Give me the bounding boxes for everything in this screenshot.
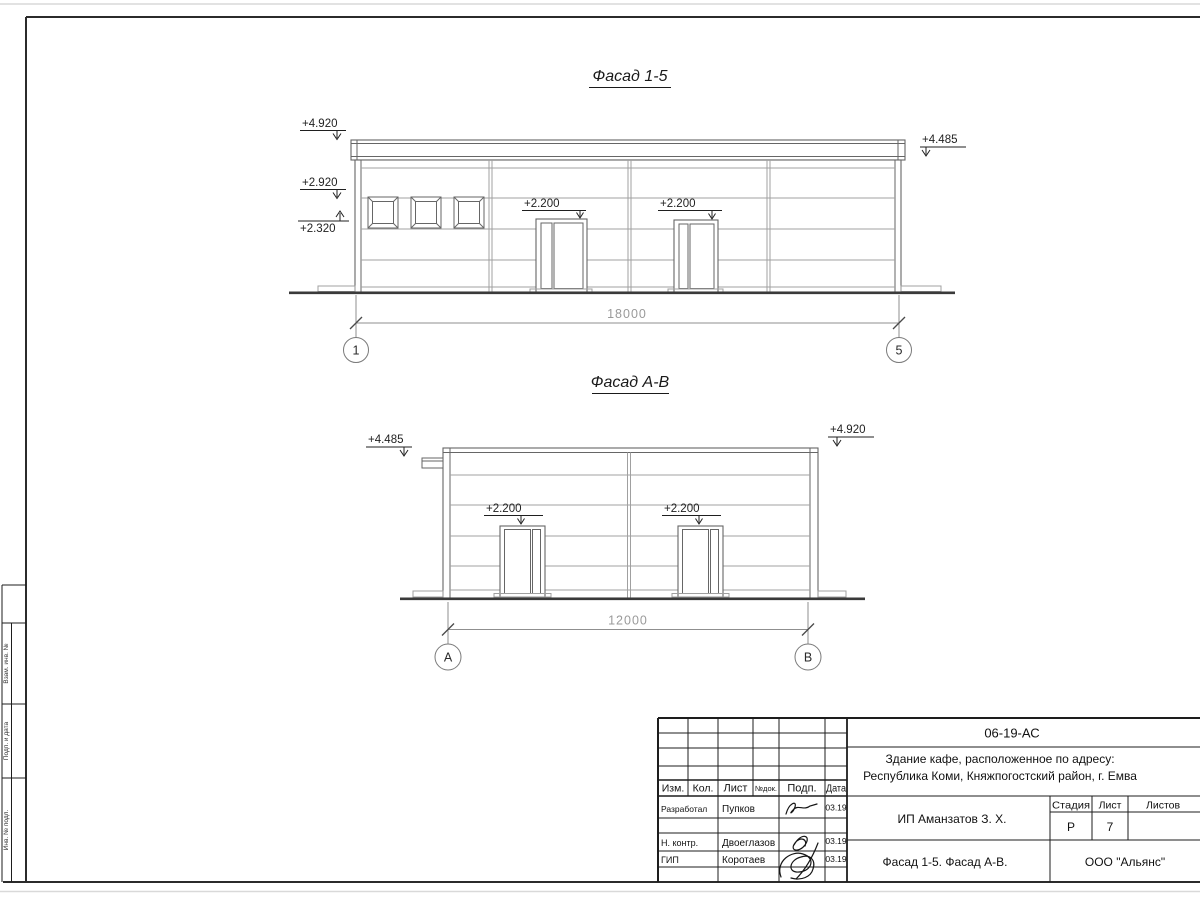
axis-bubble-b: В — [795, 644, 821, 670]
elevation-value: +4.920 — [302, 118, 338, 130]
elevation-mark-4485-left: +4.485 — [366, 434, 412, 456]
door-1 — [536, 219, 587, 292]
facade-a-b: Фасад А-В — [366, 374, 874, 670]
door-1 — [500, 526, 545, 597]
sheet-number-value: 7 — [1107, 820, 1114, 834]
stage-value: Р — [1067, 820, 1075, 834]
title-block: Изм. Кол. Лист №док. Подп. Дата Разработ… — [658, 718, 1200, 882]
facade-a-b-title: Фасад А-В — [591, 374, 670, 391]
windows — [368, 197, 484, 228]
elevation-mark-2920: +2.920 — [300, 177, 346, 199]
elevation-mark-4485-right: +4.485 — [920, 134, 966, 156]
row-role: Разработал — [661, 804, 707, 814]
door-2 — [678, 526, 723, 597]
document-number: 06-19-АС — [984, 726, 1039, 741]
personnel-rows: Разработал Пупков 03.19 Н. контр. Двоегл… — [661, 803, 847, 867]
axis-label: А — [444, 651, 453, 665]
elevation-value: +4.485 — [922, 134, 958, 146]
col-list: Лист — [724, 783, 748, 795]
project-name-line2: Республика Коми, Княжпогостский район, г… — [863, 769, 1137, 783]
sheets-total-label: Листов — [1146, 800, 1181, 812]
dimension-value: 18000 — [607, 307, 647, 321]
elevation-mark-4920-left: +4.920 — [300, 118, 346, 140]
window-3 — [454, 197, 484, 228]
row-name: Коротаев — [722, 855, 765, 866]
axis-bubble-a: А — [435, 644, 461, 670]
drawing-canvas: Взам. инв. № Подп. и дата Инв. № подл. Ф… — [0, 0, 1200, 900]
row-date: 03.19 — [825, 836, 847, 846]
col-podp: Подп. — [787, 783, 816, 795]
signature-razrabotal — [786, 803, 817, 814]
elevation-value: +2.200 — [486, 503, 522, 515]
axis-label: 5 — [896, 344, 903, 358]
side-cell-podp-label: Подп. и дата — [3, 721, 10, 760]
signature-nkontr-gip — [780, 836, 818, 879]
dimension-12000: 12000 — [442, 602, 814, 644]
axis-bubble-5: 5 — [887, 338, 912, 363]
door-2 — [674, 220, 718, 292]
facade-1-5: Фасад 1-5 — [289, 68, 966, 363]
facade-1-5-building — [289, 140, 955, 293]
row-date: 03.19 — [825, 854, 847, 864]
axis-bubble-1: 1 — [344, 338, 369, 363]
elevation-value: +2.320 — [300, 223, 336, 235]
client-name: ИП Аманзатов З. Х. — [897, 812, 1006, 826]
window-1 — [368, 197, 398, 228]
elevation-value: +2.920 — [302, 177, 338, 189]
company-name: ООО "Альянс" — [1085, 855, 1165, 869]
revision-header-row: Изм. Кол. Лист №док. Подп. Дата — [662, 783, 847, 795]
axis-label: В — [804, 651, 812, 665]
col-izm: Изм. — [662, 783, 685, 795]
col-kol: Кол. — [693, 783, 714, 795]
window-2 — [411, 197, 441, 228]
sheet-label: Лист — [1099, 800, 1122, 812]
signatures — [780, 803, 818, 879]
dimension-value: 12000 — [608, 614, 648, 628]
sheet-title: Фасад 1-5. Фасад А-В. — [883, 855, 1008, 869]
col-data: Дата — [826, 784, 846, 795]
facade-1-5-title: Фасад 1-5 — [593, 68, 668, 85]
elevation-value: +4.485 — [368, 434, 404, 446]
side-cell-inv-label: Инв. № подл. — [3, 810, 10, 851]
axis-label: 1 — [353, 344, 360, 358]
side-cell-vzam-label: Взам. инв. № — [3, 643, 10, 683]
drawing-sheet: Взам. инв. № Подп. и дата Инв. № подл. Ф… — [0, 0, 1200, 900]
elevation-value: +4.920 — [830, 424, 866, 436]
elevation-mark-4920-right: +4.920 — [828, 424, 874, 446]
dimension-18000: 18000 — [350, 295, 905, 338]
project-name-line1: Здание кафе, расположенное по адресу: — [885, 752, 1114, 766]
elevation-value: +2.200 — [660, 198, 696, 210]
side-attribute-column: Взам. инв. № Подп. и дата Инв. № подл. — [2, 585, 26, 882]
row-name: Пупков — [722, 804, 755, 815]
stage-label: Стадия — [1052, 800, 1090, 812]
elevation-mark-2320: +2.320 — [298, 211, 349, 235]
elevation-value: +2.200 — [664, 503, 700, 515]
row-role: Н. контр. — [661, 838, 698, 848]
elevation-value: +2.200 — [524, 198, 560, 210]
facade-a-b-building — [400, 448, 865, 599]
row-role: ГИП — [661, 855, 679, 865]
row-date: 03.19 — [825, 803, 847, 813]
row-name: Двоеглазов — [722, 838, 775, 849]
col-ndok: №док. — [755, 784, 777, 793]
